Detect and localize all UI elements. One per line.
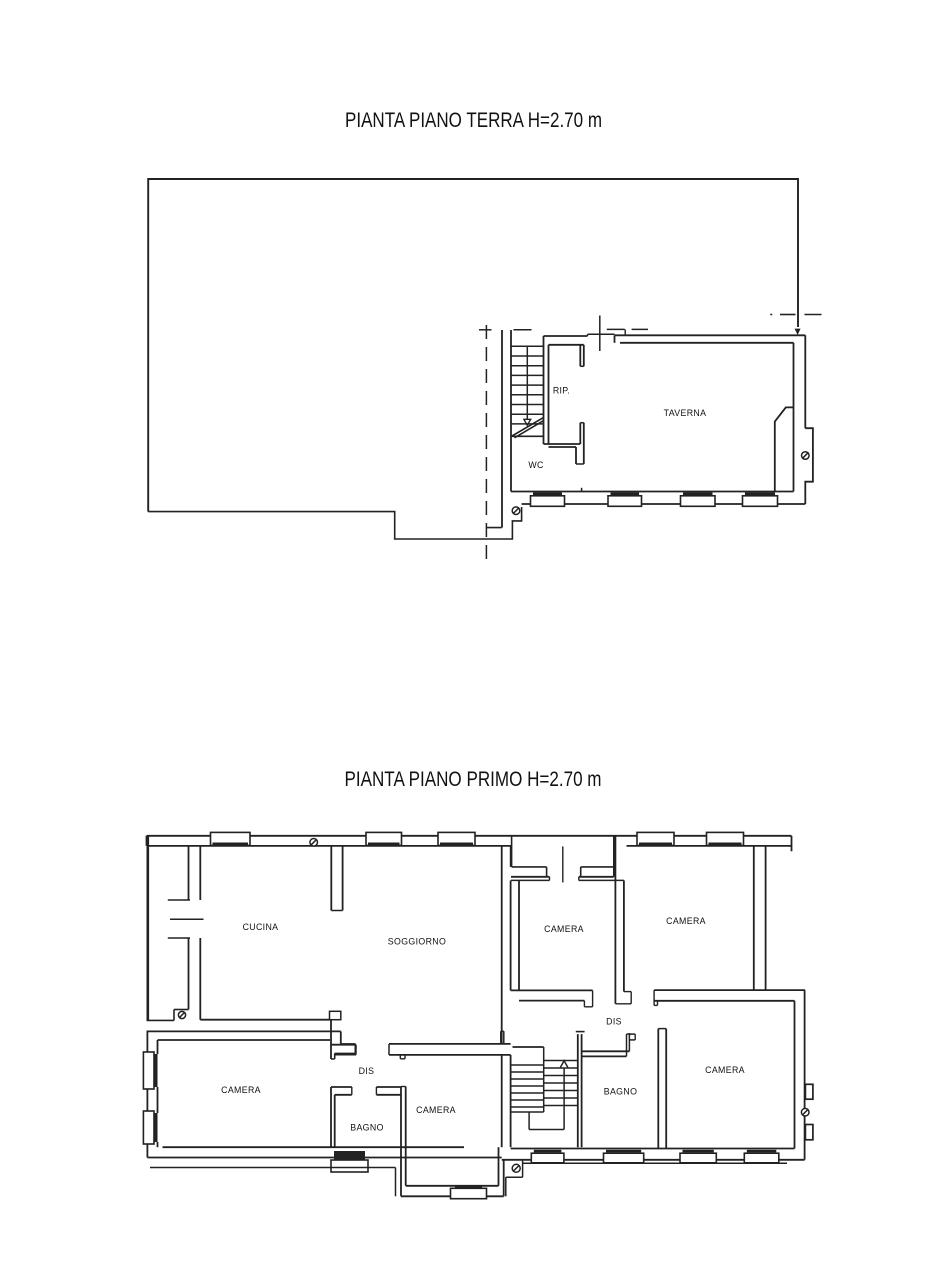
svg-text:CAMERA: CAMERA — [705, 1065, 745, 1075]
svg-text:BAGNO: BAGNO — [604, 1087, 638, 1097]
svg-text:PIANTA PIANO TERRA H=2.70 m: PIANTA PIANO TERRA H=2.70 m — [345, 109, 602, 132]
svg-text:CAMERA: CAMERA — [416, 1105, 456, 1115]
svg-text:DIS: DIS — [359, 1066, 375, 1076]
svg-text:WC: WC — [528, 460, 544, 470]
svg-text:PIANTA PIANO PRIMO H=2.70 m: PIANTA PIANO PRIMO H=2.70 m — [345, 768, 602, 791]
svg-text:RIP.: RIP. — [553, 386, 570, 396]
svg-text:CAMERA: CAMERA — [221, 1085, 261, 1095]
svg-text:CUCINA: CUCINA — [243, 922, 279, 932]
svg-text:TAVERNA: TAVERNA — [664, 408, 707, 418]
svg-text:CAMERA: CAMERA — [544, 924, 584, 934]
svg-text:DIS: DIS — [606, 1017, 622, 1027]
svg-text:BAGNO: BAGNO — [350, 1122, 384, 1132]
svg-text:SOGGIORNO: SOGGIORNO — [388, 937, 446, 947]
svg-text:CAMERA: CAMERA — [666, 916, 706, 926]
